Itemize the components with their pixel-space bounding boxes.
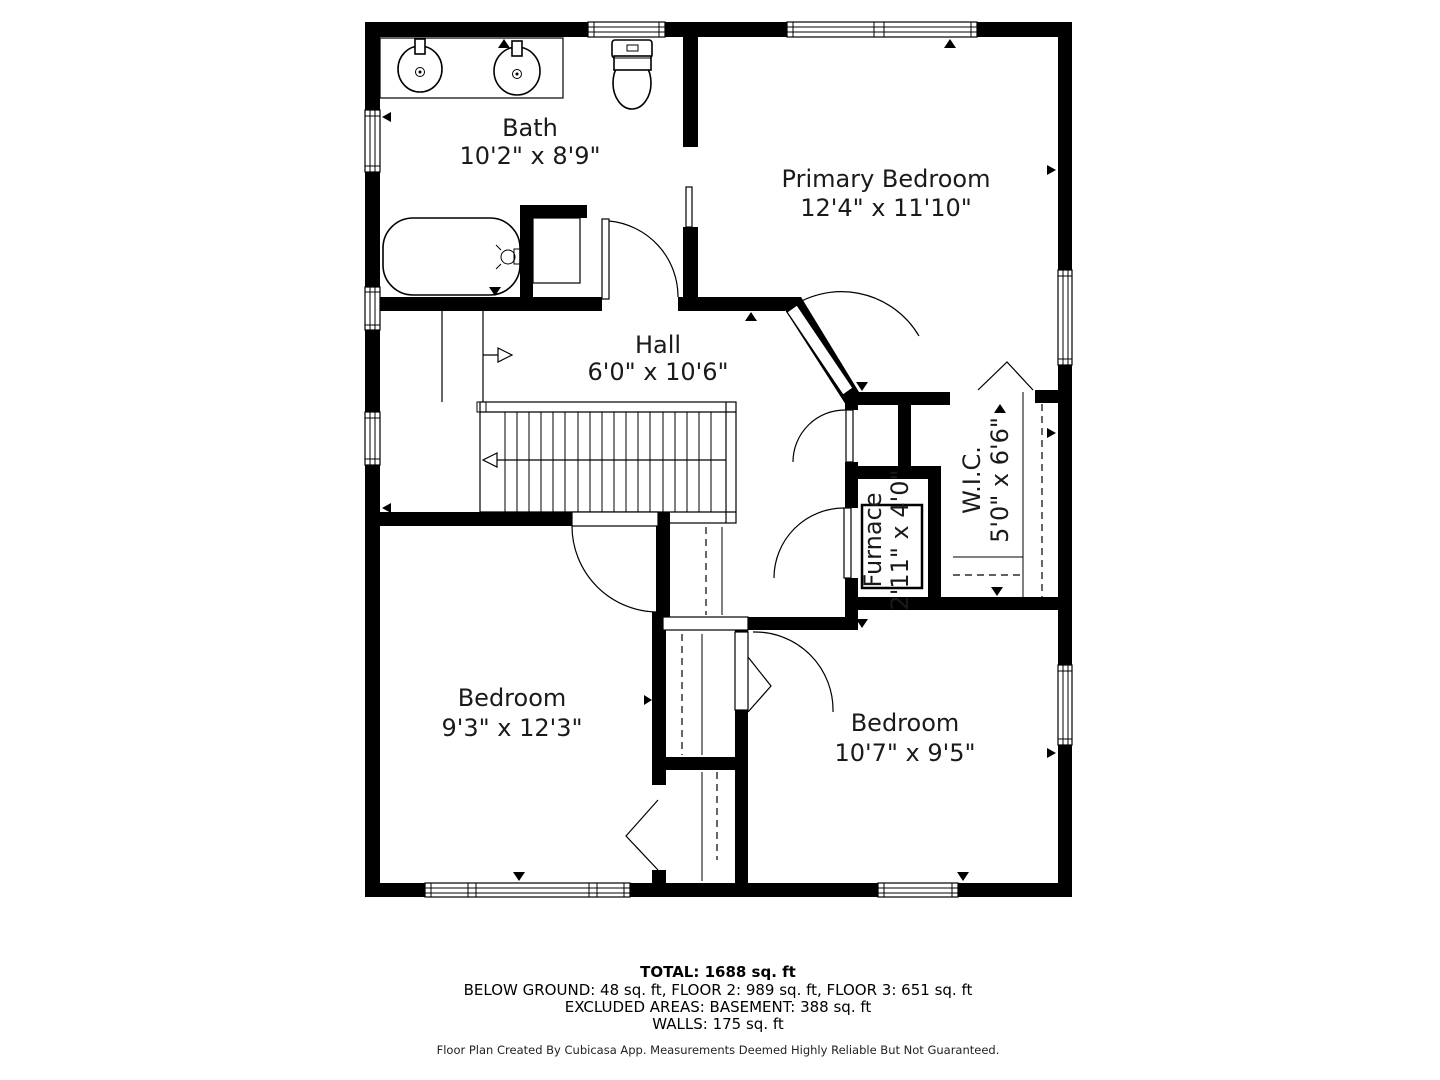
room-dims-furnace: 2'11" x 4'0" bbox=[886, 469, 914, 610]
summary-floors: BELOW GROUND: 48 sq. ft, FLOOR 2: 989 sq… bbox=[464, 981, 973, 999]
window-primary-top bbox=[787, 22, 977, 37]
summary-excluded: EXCLUDED AREAS: BASEMENT: 388 sq. ft bbox=[565, 998, 872, 1016]
bedroom-left-door bbox=[572, 512, 658, 612]
wic-bifold-door bbox=[978, 362, 1033, 390]
bathtub bbox=[383, 218, 521, 295]
window-primary-right bbox=[1058, 270, 1072, 365]
room-dims-wic: 5'0" x 6'6" bbox=[986, 417, 1014, 543]
bath-sliding-door bbox=[686, 187, 692, 227]
room-label-furnace: Furnace bbox=[859, 492, 887, 587]
window-bedroom-left bbox=[365, 412, 380, 465]
stair-up-arrow bbox=[498, 348, 512, 362]
room-dims-primary-bedroom: 12'4" x 11'10" bbox=[800, 194, 972, 222]
footer-disclaimer: Floor Plan Created By Cubicasa App. Meas… bbox=[437, 1043, 1000, 1057]
bedroom-right-door bbox=[663, 617, 833, 712]
room-dims-bedroom-right: 10'7" x 9'5" bbox=[834, 739, 975, 767]
hall-closet-door bbox=[793, 410, 853, 462]
room-dims-bath: 10'2" x 8'9" bbox=[459, 142, 600, 170]
window-bedroom-right bbox=[1058, 665, 1072, 745]
floor-plan-page: Bath 10'2" x 8'9" Primary Bedroom 12'4" … bbox=[0, 0, 1440, 1080]
area-summary: TOTAL: 1688 sq. ft BELOW GROUND: 48 sq. … bbox=[437, 963, 1000, 1057]
room-label-bath: Bath bbox=[502, 114, 558, 142]
window-bedroom-bottom-right bbox=[878, 883, 958, 897]
furnace-area-door bbox=[774, 508, 851, 578]
room-dims-bedroom-left: 9'3" x 12'3" bbox=[441, 714, 582, 742]
bath-vanity bbox=[380, 38, 563, 98]
fixtures bbox=[380, 38, 922, 588]
floor-plan: Bath 10'2" x 8'9" Primary Bedroom 12'4" … bbox=[0, 0, 1440, 1080]
stair-down-arrow bbox=[483, 453, 497, 467]
room-label-hall: Hall bbox=[635, 331, 681, 359]
window-bath-top bbox=[588, 22, 665, 37]
toilet bbox=[612, 40, 652, 109]
room-label-wic: W.I.C. bbox=[958, 446, 986, 514]
room-label-bedroom-left: Bedroom bbox=[458, 684, 567, 712]
linen-cabinet bbox=[533, 218, 580, 283]
summary-walls: WALLS: 175 sq. ft bbox=[652, 1015, 784, 1033]
closet-bifold-left bbox=[626, 800, 658, 870]
staircase bbox=[442, 311, 736, 523]
summary-total: TOTAL: 1688 sq. ft bbox=[640, 963, 796, 981]
bath-door bbox=[602, 219, 678, 299]
window-hall-left bbox=[365, 287, 380, 330]
doors bbox=[572, 187, 1033, 870]
room-label-primary-bedroom: Primary Bedroom bbox=[782, 165, 991, 193]
room-label-bedroom-right: Bedroom bbox=[851, 709, 960, 737]
window-bath-left bbox=[365, 110, 380, 172]
window-bedroom-bottom-left bbox=[425, 883, 630, 897]
closet-bifold-right bbox=[748, 657, 771, 712]
room-dims-hall: 6'0" x 10'6" bbox=[587, 358, 728, 386]
